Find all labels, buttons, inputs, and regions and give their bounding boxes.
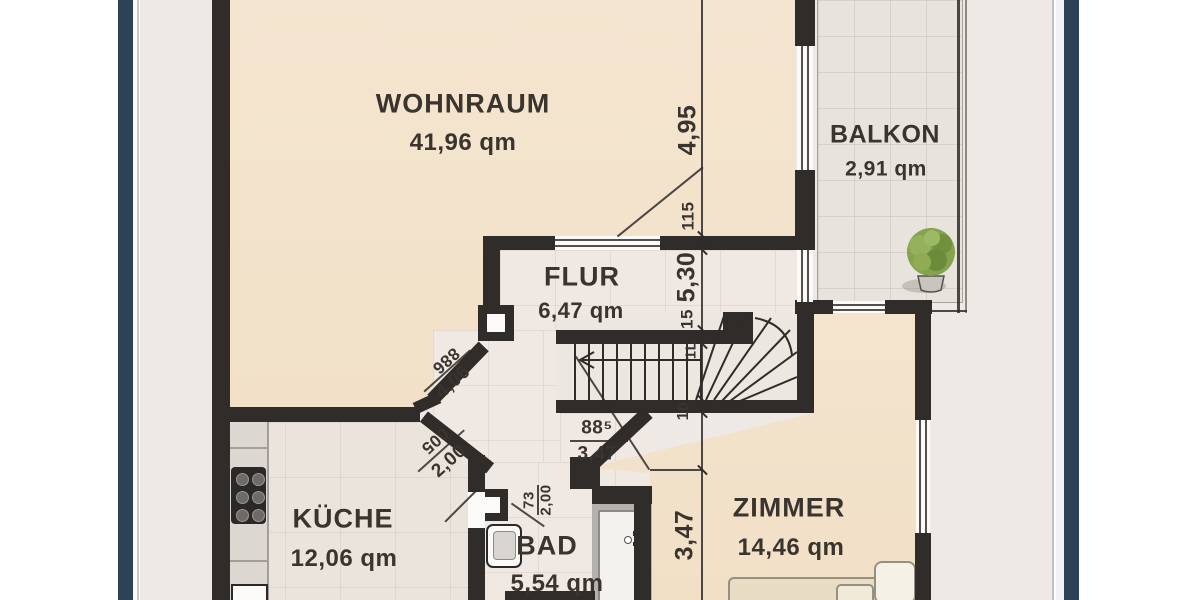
window-balkon-bottom <box>833 301 885 313</box>
wall-balkon-bottom-b <box>885 300 932 314</box>
dim-bad-door-73: 73 <box>522 491 537 509</box>
frame-inner-right <box>1056 0 1064 600</box>
room-area-bad: 5,54 qm <box>511 572 604 596</box>
bed-pillow <box>874 561 916 600</box>
window-zimmer <box>916 420 930 533</box>
page-margin-left <box>0 0 118 600</box>
sink-icon <box>231 584 268 600</box>
wall-exterior-left <box>212 0 230 600</box>
room-label-balkon: BALKON <box>830 123 940 148</box>
frame-right <box>1064 0 1079 600</box>
floorplan-page: WOHNRAUM 41,96 qm BALKON 2,91 qm FLUR 6,… <box>0 0 1200 600</box>
wall-zimmer-right-a <box>915 313 931 420</box>
counter-divider <box>230 560 267 562</box>
dim-1L: 1L <box>684 341 699 360</box>
dimension-line-vertical <box>701 0 703 600</box>
room-label-kueche: KÜCHE <box>292 506 393 533</box>
wall-wohnraum-bottom <box>218 407 420 422</box>
balcony-railing-bottom <box>930 310 967 312</box>
dim-115: 115 <box>680 202 697 231</box>
door-handle <box>624 536 632 544</box>
room-label-wohnraum: WOHNRAUM <box>376 91 550 118</box>
window-balkon-lower <box>797 250 813 302</box>
dim-extension-line <box>650 469 702 471</box>
window-balkon-door <box>797 46 813 170</box>
dim-3-47-vertical: 3,47 <box>673 510 698 561</box>
window-wohnraum-flur <box>555 236 660 250</box>
page-margin-right <box>1079 0 1200 600</box>
dim-bad-door-200: 2,00 <box>539 484 554 515</box>
bad-niche-core <box>485 497 500 513</box>
door-icon <box>598 510 638 600</box>
room-area-flur: 6,47 qm <box>538 300 623 322</box>
room-area-wohnraum: 41,96 qm <box>410 131 517 155</box>
washbasin-bowl <box>493 531 516 560</box>
fraction-line-door <box>570 440 628 442</box>
bed-cushion <box>836 584 874 600</box>
stove-burner <box>252 473 265 486</box>
dim-10: 10 <box>676 402 692 421</box>
wall-balkon-left-b <box>795 170 815 250</box>
frame-inner-left <box>133 0 137 600</box>
dim-5-30: 5,30 <box>675 252 700 303</box>
room-label-zimmer: ZIMMER <box>733 495 845 522</box>
stove-burner <box>236 491 249 504</box>
room-label-flur: FLUR <box>544 264 620 291</box>
dim-door-885: 88⁵ <box>581 419 613 438</box>
dim-15: 15 <box>679 309 696 329</box>
balcony-railing-outer <box>965 0 967 313</box>
stove-burner <box>236 509 249 522</box>
wall-balkon-left-a <box>795 0 815 46</box>
wall-zimmer-right-b <box>915 533 931 600</box>
room-area-kueche: 12,06 qm <box>291 547 398 571</box>
room-label-bad: BAD <box>516 533 578 560</box>
room-area-balkon: 2,91 qm <box>845 159 927 180</box>
stove-burner <box>252 491 265 504</box>
plan-edge-left <box>137 0 139 600</box>
counter-divider <box>230 447 267 449</box>
dim-door-347: 3,47 <box>578 445 617 464</box>
stove-burner <box>252 509 265 522</box>
frame-left <box>118 0 133 600</box>
room-area-zimmer: 14,46 qm <box>738 536 845 560</box>
plant-icon <box>898 220 964 296</box>
stove-burner <box>236 473 249 486</box>
dim-4-95: 4,95 <box>676 105 701 156</box>
plan-edge-right <box>1052 0 1054 600</box>
wall-door-right <box>634 486 651 600</box>
wall-column-core <box>487 314 505 332</box>
